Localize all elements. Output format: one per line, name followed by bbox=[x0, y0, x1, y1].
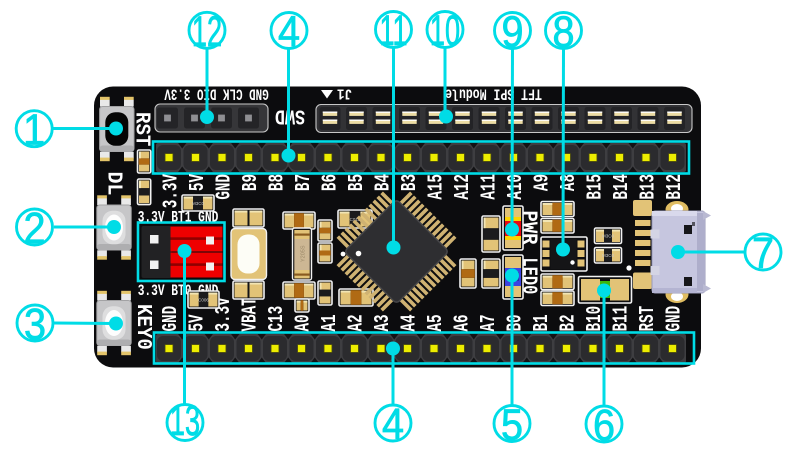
svg-text:A7: A7 bbox=[478, 314, 501, 331]
svg-text:GND: GND bbox=[160, 306, 183, 332]
svg-text:11: 11 bbox=[379, 6, 407, 55]
svg-text:A11: A11 bbox=[478, 174, 501, 200]
svg-text:RST: RST bbox=[129, 112, 153, 146]
svg-text:GND: GND bbox=[213, 174, 236, 200]
svg-text:B12: B12 bbox=[664, 174, 687, 200]
svg-text:9: 9 bbox=[501, 7, 523, 56]
svg-text:10: 10 bbox=[430, 6, 460, 55]
svg-text:B13: B13 bbox=[637, 174, 660, 200]
svg-text:4: 4 bbox=[278, 7, 300, 56]
svg-text:C006: C006 bbox=[198, 297, 209, 302]
svg-text:A15: A15 bbox=[425, 174, 448, 200]
svg-text:5: 5 bbox=[501, 400, 523, 449]
svg-text:5V: 5V bbox=[186, 314, 209, 331]
svg-text:A5: A5 bbox=[425, 314, 448, 331]
svg-text:A2: A2 bbox=[345, 314, 368, 331]
svg-text:2: 2 bbox=[23, 203, 45, 252]
svg-text:M3C0: M3C0 bbox=[602, 253, 615, 258]
svg-text:M3C0: M3C0 bbox=[602, 234, 615, 239]
svg-text:B15: B15 bbox=[584, 174, 607, 200]
svg-text:RST: RST bbox=[637, 306, 660, 332]
svg-text:M3C0: M3C0 bbox=[192, 201, 205, 206]
svg-text:A9: A9 bbox=[531, 174, 554, 191]
svg-text:PWR: PWR bbox=[517, 211, 541, 245]
svg-text:Y205S: Y205S bbox=[301, 245, 307, 262]
svg-text:A4: A4 bbox=[398, 314, 421, 331]
svg-text:3: 3 bbox=[24, 299, 46, 348]
svg-text:KEY0: KEY0 bbox=[131, 304, 155, 350]
svg-text:B7: B7 bbox=[293, 174, 316, 191]
svg-text:TFT SPI Module: TFT SPI Module bbox=[445, 84, 542, 102]
svg-text:B6: B6 bbox=[319, 174, 342, 191]
svg-text:GND CLK DIO 3.3V: GND CLK DIO 3.3V bbox=[164, 83, 269, 101]
svg-text:3.3V: 3.3V bbox=[160, 174, 183, 208]
svg-text:3.3V BT1 GND: 3.3V BT1 GND bbox=[138, 210, 219, 227]
svg-text:13: 13 bbox=[170, 396, 200, 445]
svg-text:A0: A0 bbox=[292, 314, 315, 331]
svg-text:A6: A6 bbox=[451, 314, 474, 331]
svg-text:A3: A3 bbox=[372, 314, 395, 331]
svg-text:B8: B8 bbox=[266, 174, 289, 191]
svg-text:VBAT: VBAT bbox=[239, 297, 262, 331]
svg-text:B0: B0 bbox=[504, 314, 527, 331]
svg-text:B5: B5 bbox=[346, 174, 369, 191]
svg-text:A12: A12 bbox=[452, 174, 475, 200]
svg-text:C13: C13 bbox=[266, 306, 289, 332]
svg-text:DL: DL bbox=[102, 172, 126, 196]
svg-text:8: 8 bbox=[552, 7, 574, 56]
svg-text:A10: A10 bbox=[505, 174, 528, 200]
svg-text:6: 6 bbox=[593, 400, 615, 449]
svg-text:7: 7 bbox=[752, 228, 774, 277]
svg-text:B9: B9 bbox=[240, 174, 263, 191]
svg-text:B1: B1 bbox=[531, 314, 554, 331]
svg-text:B2: B2 bbox=[557, 314, 580, 331]
svg-text:A1: A1 bbox=[319, 314, 342, 331]
svg-text:B14: B14 bbox=[611, 174, 634, 200]
svg-text:1: 1 bbox=[23, 105, 45, 154]
svg-text:12: 12 bbox=[192, 6, 222, 55]
svg-text:J1: J1 bbox=[337, 84, 352, 100]
svg-text:GND: GND bbox=[663, 306, 686, 332]
svg-text:B11: B11 bbox=[610, 306, 633, 332]
svg-text:4: 4 bbox=[382, 399, 404, 448]
svg-text:A8: A8 bbox=[558, 174, 581, 191]
svg-text:5V: 5V bbox=[187, 174, 210, 191]
svg-text:B3: B3 bbox=[399, 174, 422, 191]
svg-text:LED0: LED0 bbox=[517, 258, 541, 295]
